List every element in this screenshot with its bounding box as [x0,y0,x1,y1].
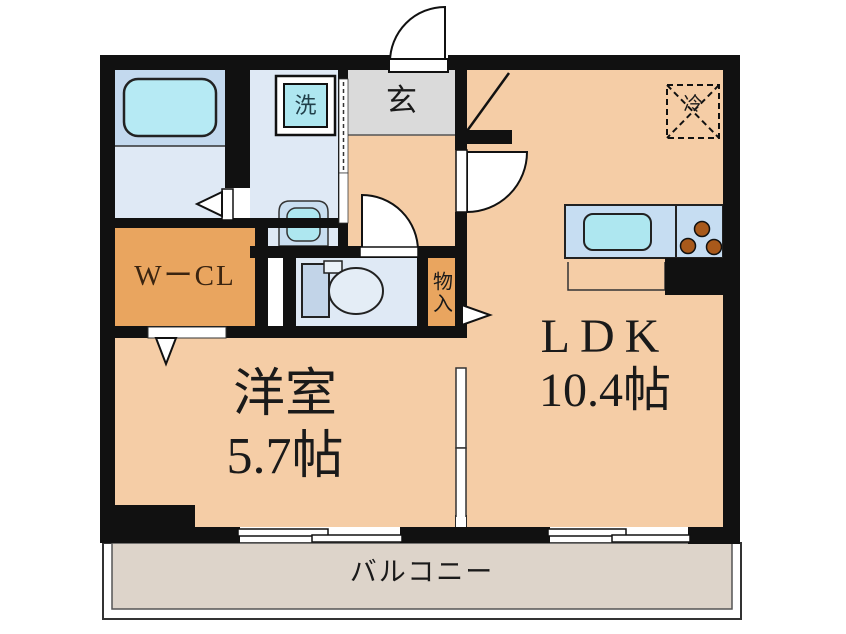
wcl-opening [148,327,226,338]
wall-toilet-left [283,246,296,338]
wall-wcl-right [255,218,268,338]
floorplan-canvas: 玄 洗 WーCL 物入 洋室 5.7帖 LDK 10.4帖 冷 バルコニー [0,0,846,634]
ldk-door-leaf [456,150,467,212]
entrance-door-leaf [389,59,448,72]
toilet-bowl [329,268,383,314]
stove-burner [707,240,722,255]
storage-floor [428,258,455,326]
wall-bottom-right [688,527,740,544]
balcony [103,543,741,619]
bathtub [124,79,216,136]
wall-bottom-jog [195,527,240,543]
ldk-window-panel [612,535,690,542]
wall-toilet-storage [417,246,428,338]
sliding-door-panel [456,368,466,448]
washing-machine-inner [284,84,327,127]
wall-toilet-top [250,246,467,258]
entrance-door-swing [390,7,445,62]
entrance-floor [348,70,455,135]
wall-kitchen-block [665,258,723,295]
wall-bottom-middle [400,527,550,543]
wall-right [723,55,740,544]
toilet-cistern [324,261,342,273]
stove-burner [695,222,710,237]
wall-left [100,55,115,543]
western-room-window-panel [312,535,402,542]
bathroom-door-leaf [222,189,233,220]
wall-shoebox-bottom [455,130,512,144]
floorplan-drawing [0,0,846,634]
sliding-door-panel [456,448,466,526]
walk-in-closet-floor [115,228,255,326]
sliding-door-channel [456,517,466,527]
balcony-floor [112,543,732,609]
toilet-door-leaf [360,247,418,257]
wall-bottom-left-block [100,505,195,543]
kitchen-sink [584,214,651,250]
washroom-opening [339,173,348,223]
stove-burner [681,239,696,254]
